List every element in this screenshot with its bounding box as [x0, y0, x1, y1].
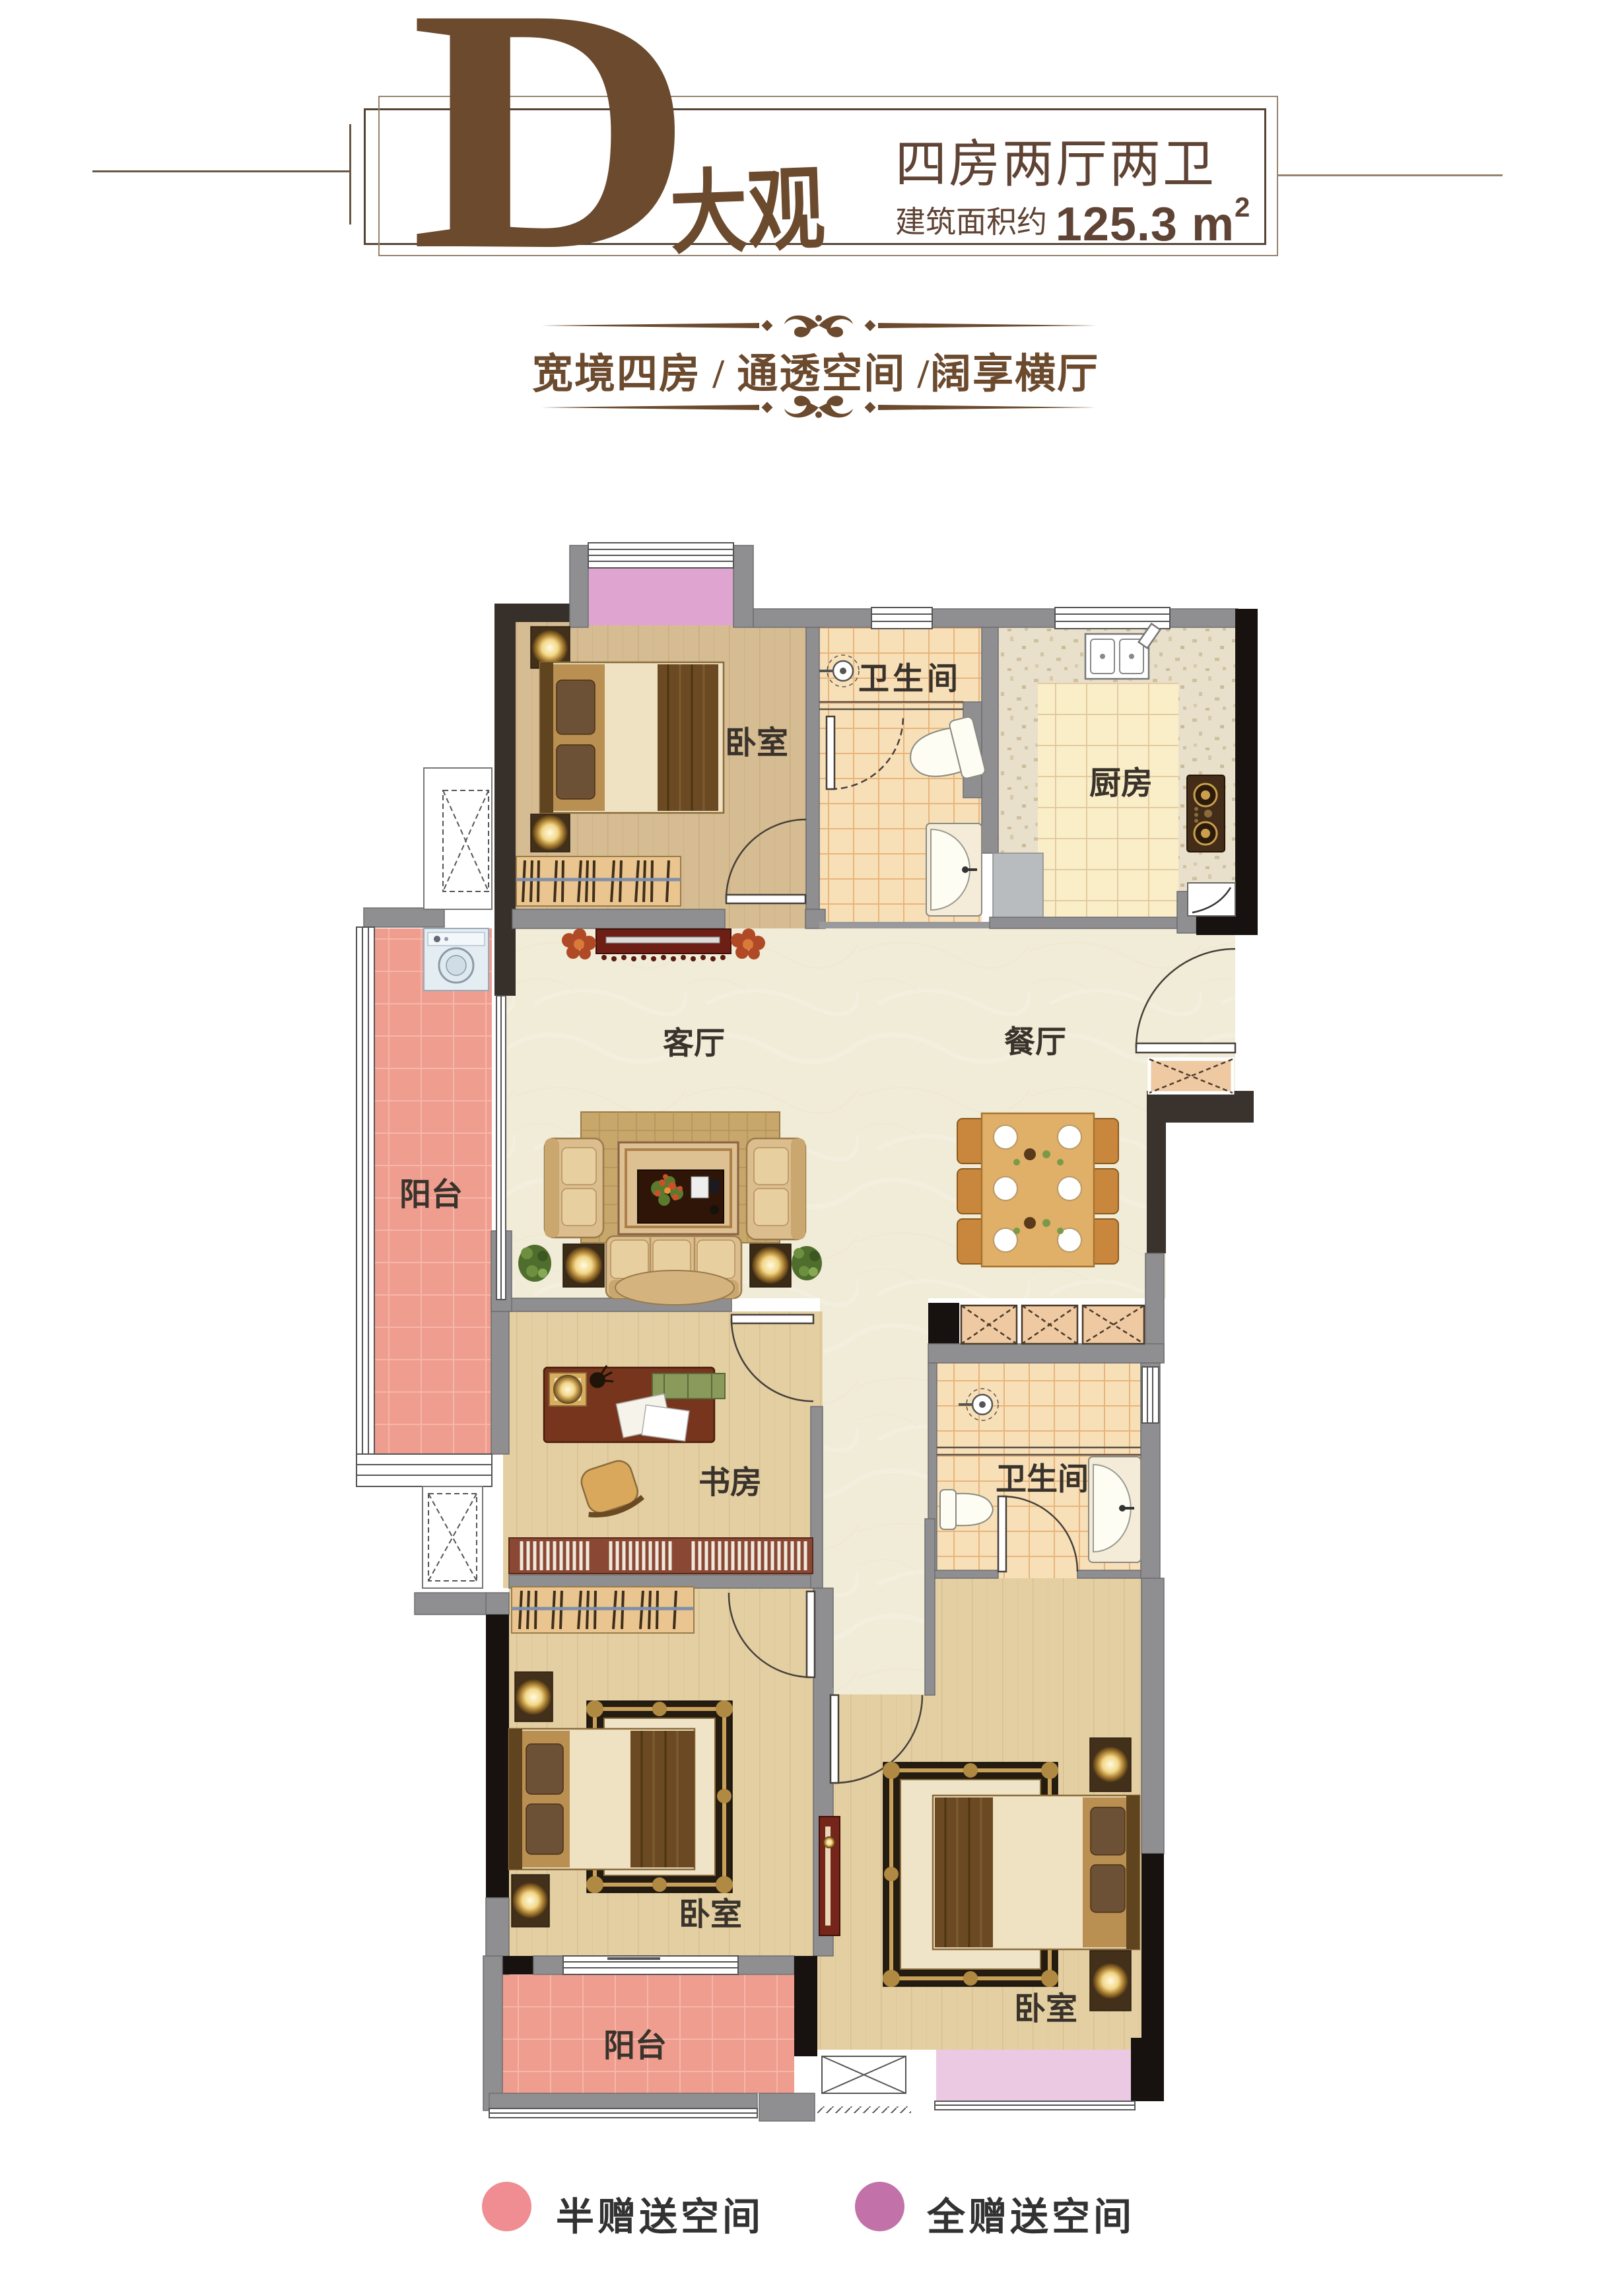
svg-text:卧室: 卧室: [679, 1897, 742, 1932]
svg-text:阳台: 阳台: [399, 1177, 463, 1212]
svg-text:卧室: 卧室: [725, 726, 788, 761]
svg-text:阳台: 阳台: [603, 2029, 667, 2064]
svg-text:书房: 书房: [698, 1465, 762, 1500]
svg-text:卧室: 卧室: [1014, 1992, 1077, 2027]
svg-text:厨房: 厨房: [1089, 766, 1153, 801]
svg-text:卫生间: 卫生间: [996, 1461, 1089, 1496]
svg-text:餐厅: 餐厅: [1004, 1024, 1066, 1059]
svg-text:卫生间: 卫生间: [858, 661, 961, 696]
svg-text:客厅: 客厅: [663, 1026, 725, 1061]
